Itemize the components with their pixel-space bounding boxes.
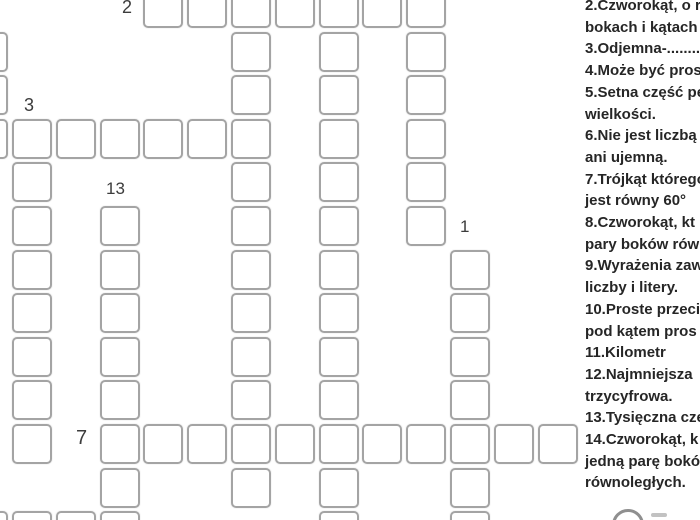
- crossword-cell[interactable]: [231, 206, 271, 246]
- crossword-cell[interactable]: [319, 119, 359, 159]
- crossword-cell[interactable]: [0, 32, 8, 72]
- crossword-cell[interactable]: [100, 293, 140, 333]
- crossword-cell[interactable]: [0, 75, 8, 115]
- clue-line: liczby i litery.: [585, 277, 700, 299]
- crossword-cell[interactable]: [0, 119, 8, 159]
- crossword-cell[interactable]: [100, 380, 140, 420]
- crossword-cell[interactable]: [12, 424, 52, 464]
- crossword-cell[interactable]: [275, 424, 315, 464]
- crossword-cell[interactable]: [231, 0, 271, 28]
- crossword-cell[interactable]: [319, 511, 359, 520]
- crossword-cell[interactable]: [12, 162, 52, 202]
- clue-line: pod kątem pros: [585, 321, 700, 343]
- crossword-cell[interactable]: [100, 250, 140, 290]
- crossword-cell[interactable]: [319, 162, 359, 202]
- clue-line: 10.Proste przeci: [585, 299, 700, 321]
- crossword-cell[interactable]: [319, 250, 359, 290]
- crossword-cell[interactable]: [406, 119, 446, 159]
- clue-list: 2.Czworokąt, o rbokach i kątach3.Odjemna…: [585, 0, 700, 494]
- crossword-cell[interactable]: [450, 337, 490, 377]
- crossword-cell[interactable]: [450, 424, 490, 464]
- logo-circle-icon: [612, 509, 644, 520]
- clue-line: 5.Setna część pe: [585, 82, 700, 104]
- crossword-cell[interactable]: [406, 0, 446, 28]
- crossword-cell[interactable]: [56, 511, 96, 520]
- crossword-cell[interactable]: [231, 250, 271, 290]
- crossword-cell[interactable]: [231, 75, 271, 115]
- crossword-cell[interactable]: [406, 206, 446, 246]
- crossword-cell[interactable]: [319, 337, 359, 377]
- crossword-cell[interactable]: [319, 380, 359, 420]
- crossword-cell[interactable]: [231, 293, 271, 333]
- crossword-cell[interactable]: [187, 0, 227, 28]
- crossword-cell[interactable]: [319, 32, 359, 72]
- crossword-cell[interactable]: [231, 162, 271, 202]
- clue-line: 9.Wyrażenia zaw: [585, 255, 700, 277]
- crossword-cell[interactable]: [231, 119, 271, 159]
- crossword-cell[interactable]: [406, 162, 446, 202]
- crossword-cell[interactable]: [12, 511, 52, 520]
- crossword-cell[interactable]: [0, 511, 8, 520]
- clue-line: jedną parę bokó: [585, 451, 700, 473]
- crossword-cell[interactable]: [12, 119, 52, 159]
- clue-line: jest równy 60°: [585, 190, 700, 212]
- crossword-cell[interactable]: [362, 0, 402, 28]
- crossword-cell[interactable]: [56, 119, 96, 159]
- crossword-cell[interactable]: [319, 75, 359, 115]
- crossword-cell[interactable]: [450, 293, 490, 333]
- crossword-page: 231317 2.Czworokąt, o rbokach i kątach3.…: [0, 0, 700, 520]
- crossword-cell[interactable]: [100, 468, 140, 508]
- logo-dash-icon: [651, 513, 667, 517]
- clue-number-label: 13: [106, 180, 125, 197]
- crossword-cell[interactable]: [450, 380, 490, 420]
- clue-number-label: 2: [122, 0, 132, 16]
- crossword-cell[interactable]: [275, 0, 315, 28]
- crossword-cell[interactable]: [406, 32, 446, 72]
- clue-line: 8.Czworokąt, kt: [585, 212, 700, 234]
- crossword-cell[interactable]: [143, 119, 183, 159]
- clue-line: 3.Odjemna-..........: [585, 38, 700, 60]
- clue-line: 14.Czworokąt, k: [585, 429, 700, 451]
- crossword-cell[interactable]: [450, 511, 490, 520]
- crossword-cell[interactable]: [231, 424, 271, 464]
- crossword-cell[interactable]: [494, 424, 534, 464]
- crossword-cell[interactable]: [231, 468, 271, 508]
- clue-line: ani ujemną.: [585, 147, 700, 169]
- crossword-cell[interactable]: [143, 424, 183, 464]
- crossword-cell[interactable]: [100, 424, 140, 464]
- crossword-cell[interactable]: [319, 206, 359, 246]
- clue-line: 12.Najmniejsza: [585, 364, 700, 386]
- crossword-cell[interactable]: [538, 424, 578, 464]
- clue-line: 6.Nie jest liczbą: [585, 125, 700, 147]
- crossword-cell[interactable]: [319, 0, 359, 28]
- clue-line: 13.Tysięczna cze: [585, 407, 700, 429]
- crossword-cell[interactable]: [319, 468, 359, 508]
- crossword-cell[interactable]: [319, 424, 359, 464]
- crossword-cell[interactable]: [231, 32, 271, 72]
- clue-line: wielkości.: [585, 104, 700, 126]
- crossword-cell[interactable]: [319, 293, 359, 333]
- crossword-cell[interactable]: [187, 424, 227, 464]
- clue-line: 4.Może być pros: [585, 60, 700, 82]
- crossword-cell[interactable]: [12, 380, 52, 420]
- clue-line: 11.Kilometr: [585, 342, 700, 364]
- clue-number-label: 1: [460, 218, 469, 235]
- crossword-cell[interactable]: [406, 424, 446, 464]
- crossword-cell[interactable]: [12, 206, 52, 246]
- clue-number-label: 3: [24, 96, 34, 114]
- crossword-cell[interactable]: [100, 206, 140, 246]
- clue-line: trzycyfrowa.: [585, 386, 700, 408]
- crossword-cell[interactable]: [450, 250, 490, 290]
- clue-line: równoległych.: [585, 472, 700, 494]
- clue-line: 7.Trójkąt którego: [585, 169, 700, 191]
- crossword-cell[interactable]: [406, 75, 446, 115]
- crossword-cell[interactable]: [12, 293, 52, 333]
- crossword-cell[interactable]: [100, 511, 140, 520]
- crossword-cell[interactable]: [12, 337, 52, 377]
- crossword-cell[interactable]: [231, 380, 271, 420]
- crossword-cell[interactable]: [187, 119, 227, 159]
- crossword-cell[interactable]: [362, 424, 402, 464]
- crossword-cell[interactable]: [231, 337, 271, 377]
- clue-number-label: 7: [76, 428, 87, 448]
- crossword-cell[interactable]: [450, 468, 490, 508]
- crossword-cell[interactable]: [12, 250, 52, 290]
- clue-line: bokach i kątach: [585, 17, 700, 39]
- clue-line: pary boków rów: [585, 234, 700, 256]
- crossword-cell[interactable]: [100, 337, 140, 377]
- crossword-cell[interactable]: [143, 0, 183, 28]
- clue-line: 2.Czworokąt, o r: [585, 0, 700, 17]
- crossword-cell[interactable]: [100, 119, 140, 159]
